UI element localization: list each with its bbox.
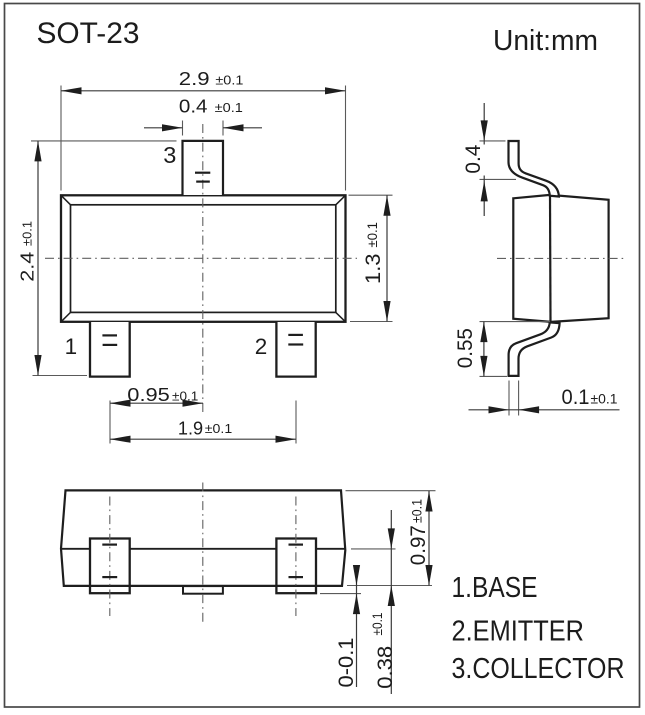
svg-text:0-0.1: 0-0.1 <box>335 638 358 688</box>
svg-text:1.BASE: 1.BASE <box>452 572 538 604</box>
svg-text:3.COLLECTOR: 3.COLLECTOR <box>452 653 625 685</box>
svg-text:1.3: 1.3 <box>362 254 385 285</box>
svg-text:±0.1: ±0.1 <box>410 499 425 523</box>
svg-text:Unit:mm: Unit:mm <box>493 25 598 57</box>
svg-text:0.95: 0.95 <box>127 384 170 405</box>
svg-text:1: 1 <box>65 334 78 359</box>
svg-text:0.97: 0.97 <box>407 525 430 565</box>
svg-text:±0.1: ±0.1 <box>591 391 618 406</box>
svg-text:±0.1: ±0.1 <box>365 222 380 248</box>
svg-text:0.4: 0.4 <box>462 144 485 173</box>
svg-text:±0.1: ±0.1 <box>172 388 198 403</box>
svg-text:0.4: 0.4 <box>179 95 208 116</box>
svg-text:±0.1: ±0.1 <box>205 421 232 436</box>
svg-text:2.4: 2.4 <box>17 252 38 282</box>
svg-text:1.9: 1.9 <box>178 418 203 439</box>
svg-text:0.38: 0.38 <box>374 646 397 689</box>
svg-text:0.1: 0.1 <box>562 386 590 409</box>
svg-text:±0.1: ±0.1 <box>370 613 385 636</box>
svg-text:±0.1: ±0.1 <box>20 221 35 246</box>
svg-text:2.EMITTER: 2.EMITTER <box>452 615 585 647</box>
svg-text:±0.1: ±0.1 <box>215 72 243 87</box>
svg-text:2: 2 <box>255 334 268 359</box>
svg-text:2.9: 2.9 <box>179 68 210 89</box>
svg-text:0.55: 0.55 <box>454 328 477 368</box>
svg-text:±0.1: ±0.1 <box>215 100 243 115</box>
svg-text:SOT-23: SOT-23 <box>37 17 140 50</box>
svg-text:3: 3 <box>163 142 176 168</box>
